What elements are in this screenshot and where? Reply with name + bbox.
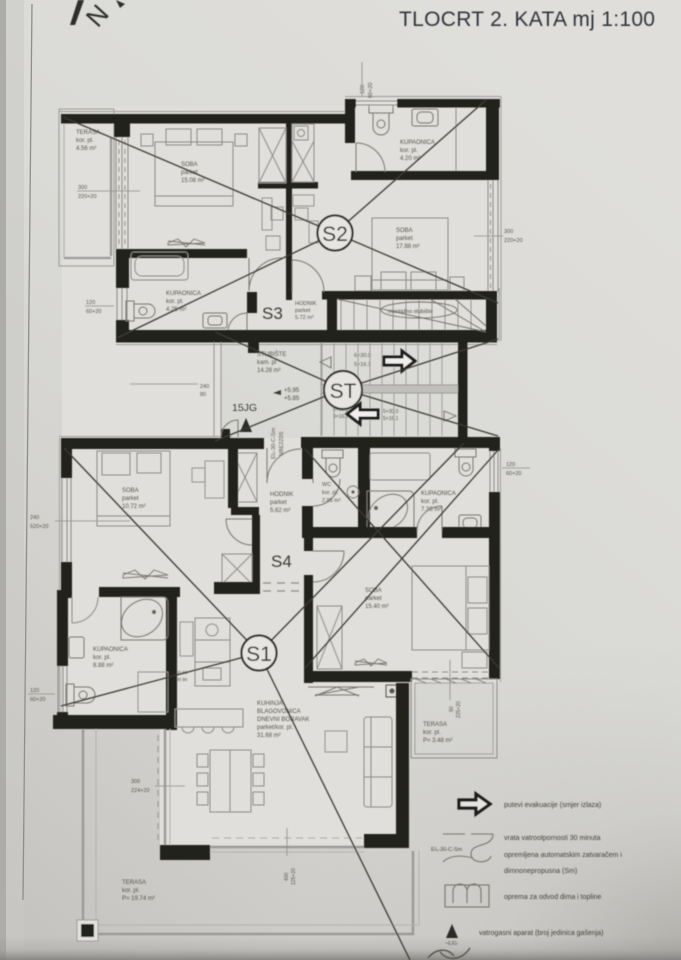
svg-text:120: 120 — [360, 85, 366, 94]
svg-text:TERASA: TERASA — [122, 880, 146, 886]
svg-text:WC: WC — [322, 482, 331, 488]
svg-text:parket: parket — [396, 236, 413, 242]
svg-text:KUPAONICA: KUPAONICA — [166, 291, 201, 297]
svg-text:dimnonepropusna (Sm): dimnonepropusna (Sm) — [504, 868, 577, 875]
svg-text:5×30.0: 5×30.0 — [383, 409, 399, 415]
svg-text:BLAGOVONICA: BLAGOVONICA — [257, 709, 301, 715]
svg-text:opremljena automatskim zatvara: opremljena automatskim zatvaračem i — [504, 852, 622, 859]
svg-text:kor. pl.: kor. pl. — [400, 148, 418, 154]
svg-text:5×16.1: 5×16.1 — [383, 416, 399, 422]
svg-text:KUHINJA: KUHINJA — [257, 701, 283, 707]
svg-text:EI₂-30-C-Sm: EI₂-30-C-Sm — [271, 427, 277, 459]
svg-text:oprema za odvod dima i topline: oprema za odvod dima i topline — [504, 894, 601, 901]
svg-text:5×16.1: 5×16.1 — [354, 362, 371, 368]
svg-text:ST: ST — [330, 380, 357, 403]
svg-text:kor. pl.: kor. pl. — [76, 138, 94, 144]
svg-text:kor. pl.: kor. pl. — [122, 888, 140, 894]
svg-text:15JG: 15JG — [232, 402, 257, 414]
svg-text:TERASA: TERASA — [423, 722, 447, 728]
svg-text:KUPAONICA: KUPAONICA — [421, 491, 456, 497]
svg-text:300: 300 — [78, 185, 87, 191]
svg-text:SOBA: SOBA — [181, 162, 198, 168]
svg-text:15.40 m²: 15.40 m² — [365, 604, 389, 610]
svg-text:kam. pl: kam. pl — [257, 360, 276, 366]
svg-text:300: 300 — [131, 779, 140, 785]
svg-text:10.72 m²: 10.72 m² — [122, 504, 146, 510]
svg-text:kor. pl.: kor. pl. — [423, 730, 441, 736]
svg-text:SOBA: SOBA — [396, 228, 413, 234]
svg-text:6×30.0: 6×30.0 — [354, 353, 371, 359]
svg-text:HODNIK: HODNIK — [270, 492, 293, 498]
svg-text:120: 120 — [86, 300, 95, 306]
svg-text:S4: S4 — [271, 552, 292, 571]
svg-text:90 90: 90 90 — [176, 677, 188, 682]
svg-text:HODNIK: HODNIK — [295, 301, 317, 307]
svg-text:520+20: 520+20 — [30, 524, 49, 530]
svg-text:400: 400 — [284, 872, 290, 881]
svg-text:S2: S2 — [322, 223, 348, 246]
svg-text:4.56 m²: 4.56 m² — [76, 146, 96, 152]
svg-text:220+20: 220+20 — [504, 238, 523, 244]
svg-text:parket: parket — [270, 500, 287, 506]
svg-text:60+20: 60+20 — [86, 309, 101, 315]
svg-text:+5.85: +5.85 — [284, 396, 300, 402]
svg-text:220+20: 220+20 — [78, 194, 97, 200]
svg-text:17.88 m²: 17.88 m² — [396, 244, 420, 250]
svg-text:putevi evakuacije (smjer izlaz: putevi evakuacije (smjer izlaza) — [504, 802, 601, 809]
svg-text:225+20: 225+20 — [456, 701, 462, 718]
svg-text:montažno stubište: montažno stubište — [388, 309, 433, 315]
svg-text:vrata vatrootpornosti 30 minut: vrata vatrootpornosti 30 minuta — [504, 835, 601, 842]
svg-text:5.62 m²: 5.62 m² — [270, 508, 290, 514]
svg-text:NBE2Z0S: NBE2Z0S — [279, 431, 285, 456]
svg-text:125+20: 125+20 — [291, 868, 297, 885]
svg-text:S3: S3 — [262, 304, 283, 323]
svg-text:parket/kor. pl.: parket/kor. pl. — [257, 725, 293, 731]
svg-text:kor. pl.: kor. pl. — [93, 655, 111, 661]
svg-text:15.08 m²: 15.08 m² — [181, 178, 205, 184]
svg-text:240: 240 — [30, 515, 39, 521]
svg-text:parket: parket — [295, 308, 311, 314]
svg-text:SOBA: SOBA — [122, 488, 139, 494]
svg-text:224+20: 224+20 — [131, 788, 150, 794]
svg-text:2.85 m²: 2.85 m² — [322, 498, 341, 504]
svg-text:60+20: 60+20 — [30, 697, 45, 703]
svg-text:kor. pl.: kor. pl. — [322, 490, 339, 496]
svg-text:~6JG: ~6JG — [445, 941, 457, 947]
svg-text:parket: parket — [122, 496, 139, 502]
svg-text:KUPAONICA: KUPAONICA — [400, 140, 435, 146]
svg-text:90: 90 — [449, 706, 455, 712]
svg-text:P= 19.74 m²: P= 19.74 m² — [122, 896, 155, 902]
svg-text:TLOCRT 2. KATA mj 1:100: TLOCRT 2. KATA mj 1:100 — [399, 8, 655, 31]
svg-text:S1: S1 — [246, 643, 272, 666]
svg-text:120: 120 — [506, 462, 515, 468]
svg-text:P= 3.48 m²: P= 3.48 m² — [423, 738, 453, 744]
svg-text:60+20: 60+20 — [506, 471, 521, 477]
svg-text:+5.95: +5.95 — [284, 388, 300, 394]
svg-text:8.88 m²: 8.88 m² — [93, 663, 113, 669]
svg-text:300: 300 — [504, 229, 513, 235]
svg-text:vatrogasni aparat (broj jedini: vatrogasni aparat (broj jedinica gašenja… — [479, 930, 604, 937]
svg-text:240: 240 — [200, 384, 209, 390]
svg-text:14.28 m²: 14.28 m² — [257, 368, 281, 374]
svg-text:DNEVNI BORAVAK: DNEVNI BORAVAK — [257, 717, 309, 723]
svg-text:80: 80 — [200, 392, 206, 398]
svg-text:kor. pl.: kor. pl. — [166, 299, 184, 305]
svg-text:kor. pl.: kor. pl. — [421, 499, 439, 505]
svg-text:EI₂-30-C-Sm: EI₂-30-C-Sm — [431, 847, 463, 853]
svg-text:KUPAONICA: KUPAONICA — [93, 647, 128, 653]
svg-text:60+20: 60+20 — [368, 83, 374, 98]
svg-text:5.72 m²: 5.72 m² — [295, 315, 314, 321]
svg-text:31.68 m²: 31.68 m² — [257, 733, 281, 739]
svg-text:120: 120 — [30, 688, 39, 694]
